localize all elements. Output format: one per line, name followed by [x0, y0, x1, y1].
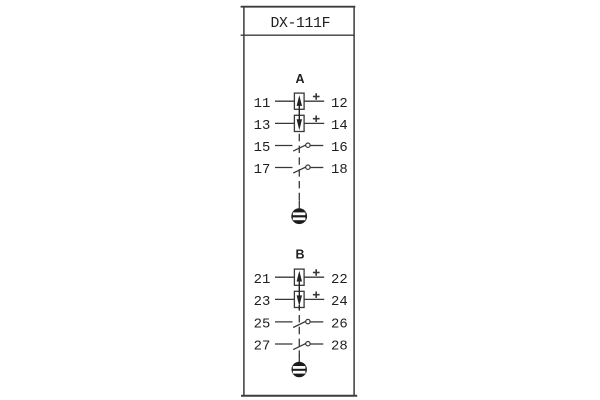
svg-text:25: 25	[254, 317, 271, 333]
svg-text:22: 22	[331, 272, 348, 288]
svg-text:DX-111F: DX-111F	[270, 16, 330, 32]
svg-text:24: 24	[331, 294, 348, 310]
svg-text:18: 18	[331, 162, 348, 178]
svg-text:13: 13	[254, 118, 271, 134]
svg-text:A: A	[295, 72, 304, 86]
svg-text:12: 12	[331, 96, 348, 112]
svg-text:15: 15	[254, 140, 271, 156]
svg-text:16: 16	[331, 140, 348, 156]
svg-text:26: 26	[331, 317, 348, 333]
svg-text:28: 28	[331, 339, 348, 355]
svg-text:11: 11	[254, 96, 271, 112]
svg-text:14: 14	[331, 118, 348, 134]
svg-text:21: 21	[254, 272, 271, 288]
svg-text:23: 23	[254, 294, 271, 310]
svg-text:B: B	[295, 248, 304, 262]
svg-text:17: 17	[254, 162, 271, 178]
svg-text:27: 27	[254, 339, 271, 355]
